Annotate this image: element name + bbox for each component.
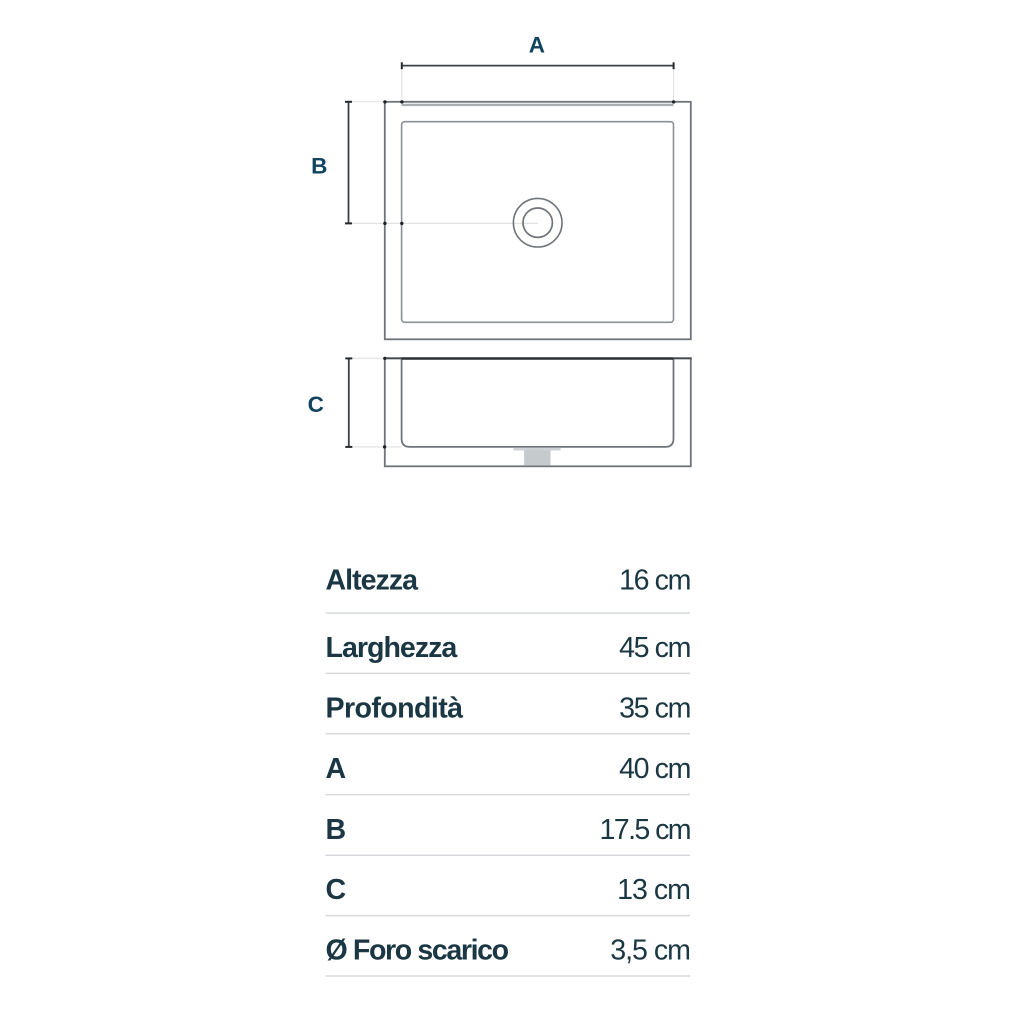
svg-text:40 cm: 40 cm: [619, 753, 690, 785]
svg-text:Profondità: Profondità: [326, 692, 464, 724]
svg-text:B: B: [326, 814, 346, 846]
svg-text:35 cm: 35 cm: [619, 692, 690, 724]
svg-text:B: B: [311, 154, 327, 179]
svg-text:45 cm: 45 cm: [619, 632, 690, 664]
svg-text:Ø Foro scarico: Ø Foro scarico: [326, 935, 509, 967]
svg-text:16 cm: 16 cm: [619, 564, 690, 596]
svg-text:Altezza: Altezza: [326, 564, 420, 596]
svg-text:17.5 cm: 17.5 cm: [599, 814, 690, 846]
svg-text:A: A: [326, 753, 346, 785]
svg-text:3,5 cm: 3,5 cm: [610, 935, 690, 967]
svg-text:13 cm: 13 cm: [617, 874, 690, 906]
svg-text:A: A: [529, 32, 545, 57]
svg-text:C: C: [326, 874, 346, 906]
svg-text:Larghezza: Larghezza: [326, 632, 459, 664]
svg-text:C: C: [308, 392, 324, 417]
